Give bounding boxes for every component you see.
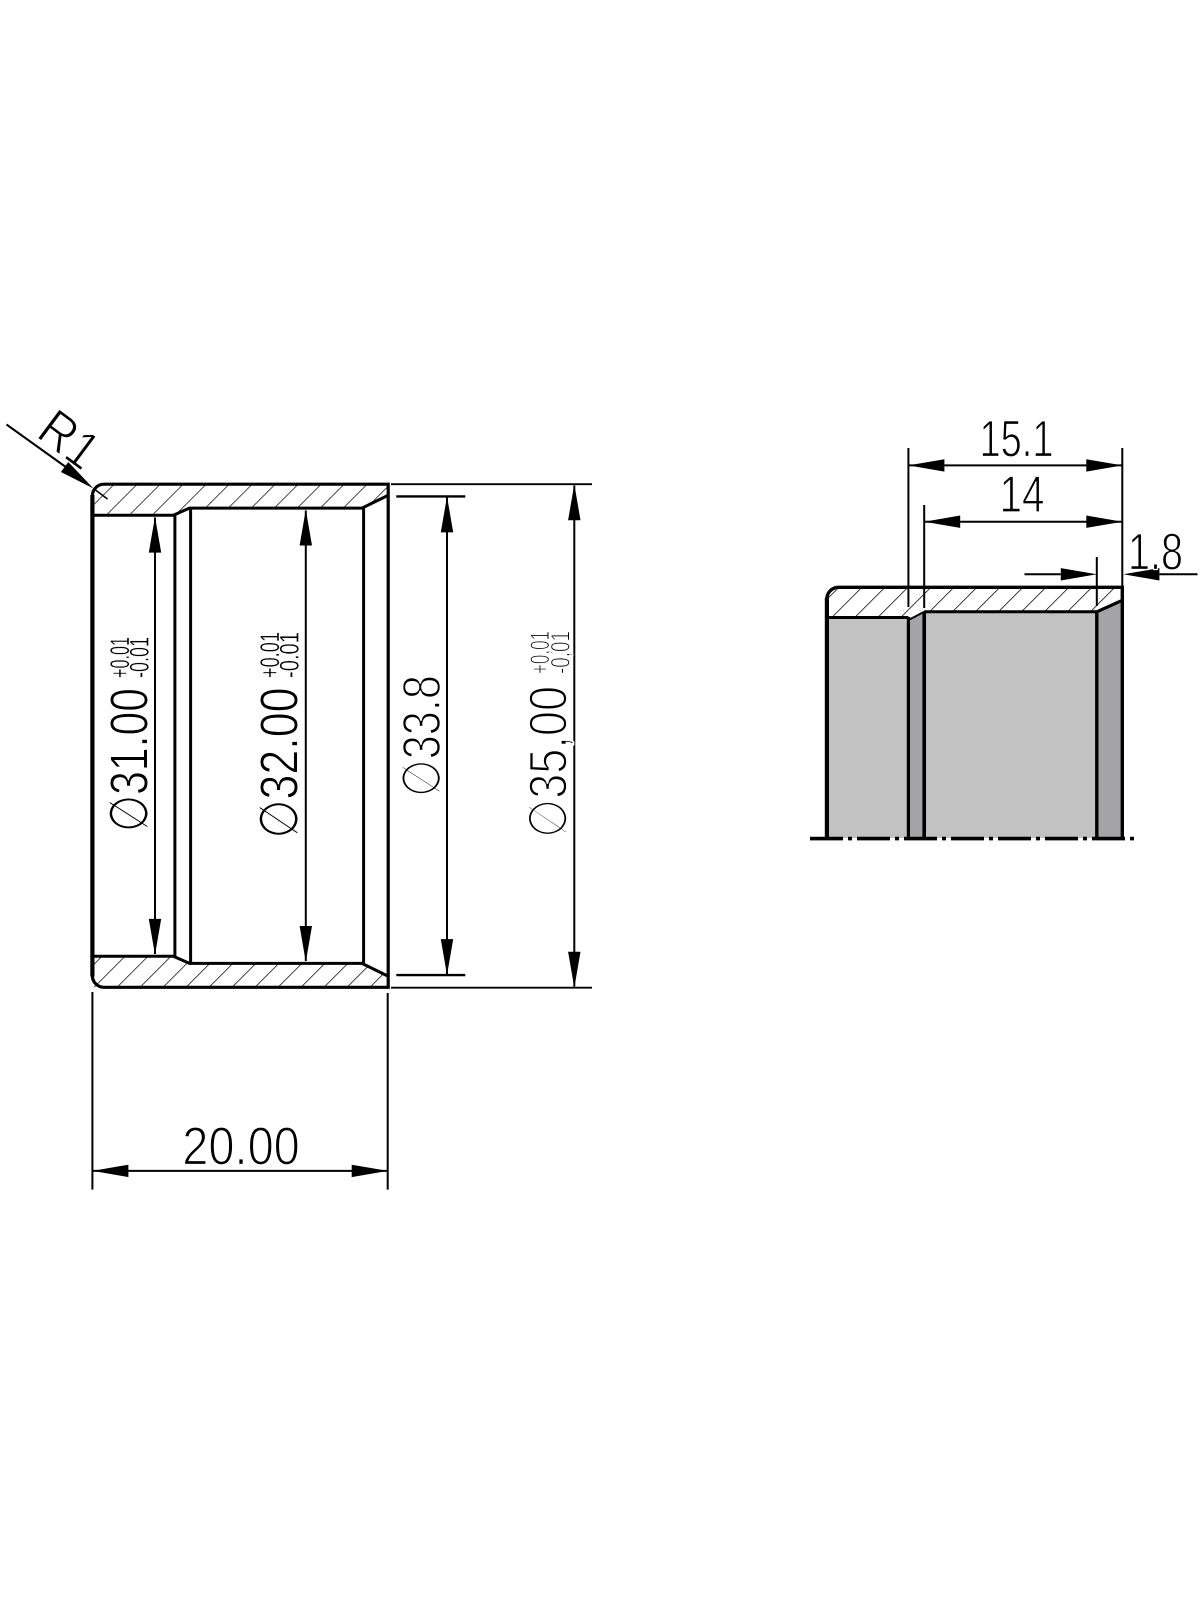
svg-text:15.1: 15.1 — [980, 410, 1054, 468]
svg-text:∅31.00: ∅31.00 — [100, 688, 160, 832]
svg-text:-0,01: -0,01 — [546, 631, 576, 674]
svg-text:1.8: 1.8 — [1128, 524, 1183, 582]
svg-text:-0.01: -0.01 — [125, 637, 155, 678]
svg-text:20.00: 20.00 — [182, 1117, 299, 1177]
svg-text:∅33.8: ∅33.8 — [392, 675, 452, 797]
svg-text:14: 14 — [1000, 466, 1045, 524]
svg-text:∅32.00: ∅32.00 — [250, 688, 310, 839]
svg-text:∅35,00: ∅35,00 — [519, 686, 579, 838]
svg-text:-0.01: -0.01 — [275, 632, 305, 678]
